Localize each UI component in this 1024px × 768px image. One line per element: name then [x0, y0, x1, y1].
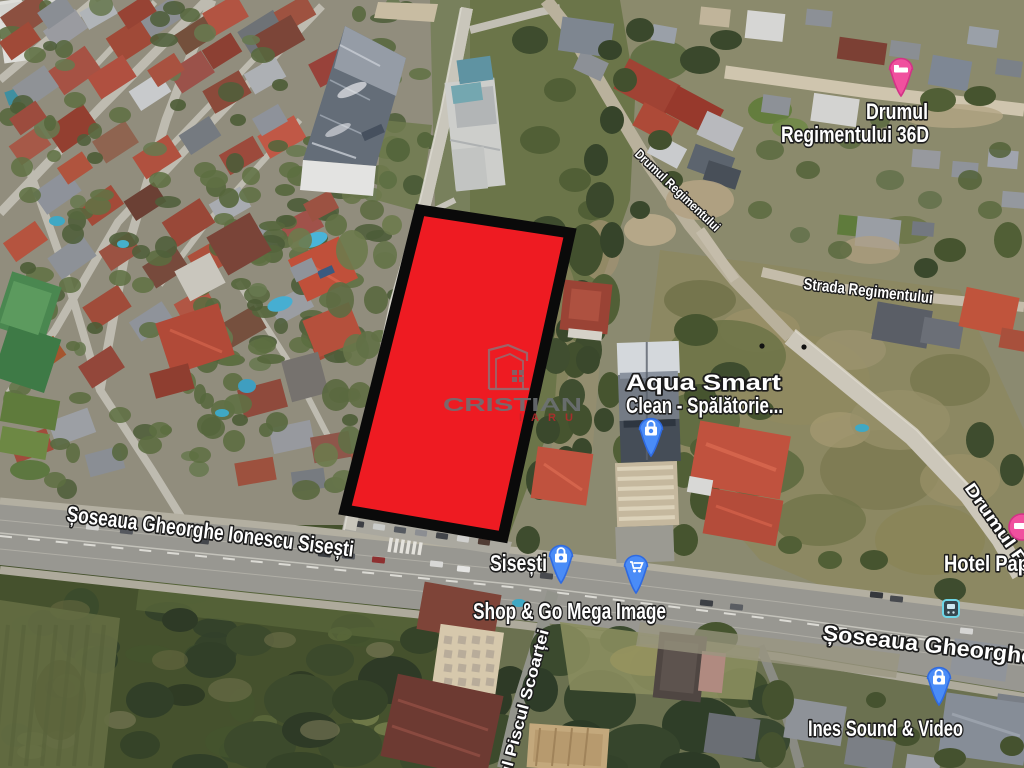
svg-text:Sisești: Sisești: [490, 550, 547, 577]
svg-text:Shop & Go Mega Image: Shop & Go Mega Image: [473, 598, 666, 624]
svg-text:Aqua Smart: Aqua Smart: [626, 370, 782, 395]
svg-text:Hotel Pap: Hotel Pap: [944, 551, 1024, 576]
svg-text:Ines Sound & Video: Ines Sound & Video: [808, 716, 963, 741]
svg-text:Clean - Spălătorie...: Clean - Spălătorie...: [626, 393, 783, 418]
svg-text:Drumul: Drumul: [866, 99, 928, 124]
svg-text:Regimentului 36D: Regimentului 36D: [781, 122, 929, 147]
svg-text:IARU: IARU: [519, 412, 582, 424]
